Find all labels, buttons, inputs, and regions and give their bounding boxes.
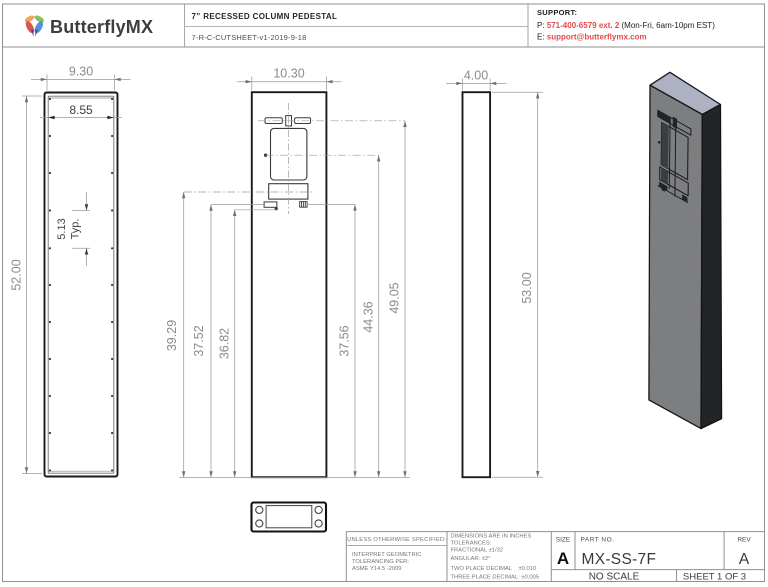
svg-text:52.00: 52.00 xyxy=(10,259,24,290)
svg-text:FRACTIONAL ±1/32: FRACTIONAL ±1/32 xyxy=(451,547,504,553)
svg-text:8.55: 8.55 xyxy=(69,103,93,117)
svg-text:SHEET 1 OF 3: SHEET 1 OF 3 xyxy=(683,572,746,583)
svg-text:REV: REV xyxy=(737,537,751,544)
svg-text:P: 571-400-6579 ext. 2 (Mon-Fr: P: 571-400-6579 ext. 2 (Mon-Fri, 6am-10p… xyxy=(537,21,715,30)
svg-text:DIMENSIONS ARE IN INCHES: DIMENSIONS ARE IN INCHES xyxy=(451,533,532,539)
svg-text:INTERPRET GEOMETRIC: INTERPRET GEOMETRIC xyxy=(352,552,421,558)
svg-text:Typ.: Typ. xyxy=(70,219,82,240)
svg-text:SUPPORT:: SUPPORT: xyxy=(537,8,577,17)
svg-text:A: A xyxy=(739,551,750,568)
svg-text:MX-SS-7F: MX-SS-7F xyxy=(582,551,657,568)
svg-text:ANGULAR: ±2°: ANGULAR: ±2° xyxy=(451,556,491,562)
svg-text:7-R-C-CUTSHEET-v1-2019-9-18: 7-R-C-CUTSHEET-v1-2019-9-18 xyxy=(192,33,307,42)
svg-text:5.13: 5.13 xyxy=(56,218,68,239)
svg-text:TWO PLACE DECIMAL ±0.010: TWO PLACE DECIMAL ±0.010 xyxy=(451,566,537,572)
svg-text:TOLERANCES:: TOLERANCES: xyxy=(451,540,492,546)
svg-text:44.36: 44.36 xyxy=(361,301,375,332)
svg-text:53.00: 53.00 xyxy=(520,272,534,303)
svg-text:7” RECESSED COLUMN PEDESTAL: 7” RECESSED COLUMN PEDESTAL xyxy=(192,12,338,21)
svg-text:36.82: 36.82 xyxy=(217,328,231,359)
svg-text:A: A xyxy=(557,549,569,568)
svg-text:PART NO.: PART NO. xyxy=(581,537,615,544)
svg-text:SIZE: SIZE xyxy=(556,537,571,544)
svg-text:37.52: 37.52 xyxy=(192,325,206,356)
svg-text:37.56: 37.56 xyxy=(338,325,352,356)
svg-text:ASME Y14.5 -2009: ASME Y14.5 -2009 xyxy=(352,566,402,572)
svg-text:9.30: 9.30 xyxy=(69,65,93,79)
svg-text:TOLERANCING PER:: TOLERANCING PER: xyxy=(352,559,409,565)
svg-text:ButterflyMX: ButterflyMX xyxy=(50,17,153,37)
svg-text:4.00: 4.00 xyxy=(464,69,488,83)
svg-text:39.29: 39.29 xyxy=(165,320,179,351)
svg-text:49.05: 49.05 xyxy=(388,282,402,313)
svg-text:10.30: 10.30 xyxy=(273,67,304,81)
svg-text:NO SCALE: NO SCALE xyxy=(589,572,640,583)
svg-text:UNLESS OTHERWISE SPECIFIED:: UNLESS OTHERWISE SPECIFIED: xyxy=(347,537,446,543)
svg-text:THREE PLACE DECIMAL ±0.005: THREE PLACE DECIMAL ±0.005 xyxy=(451,575,540,581)
svg-text:E: support@butterflymx.com: E: support@butterflymx.com xyxy=(537,33,647,42)
